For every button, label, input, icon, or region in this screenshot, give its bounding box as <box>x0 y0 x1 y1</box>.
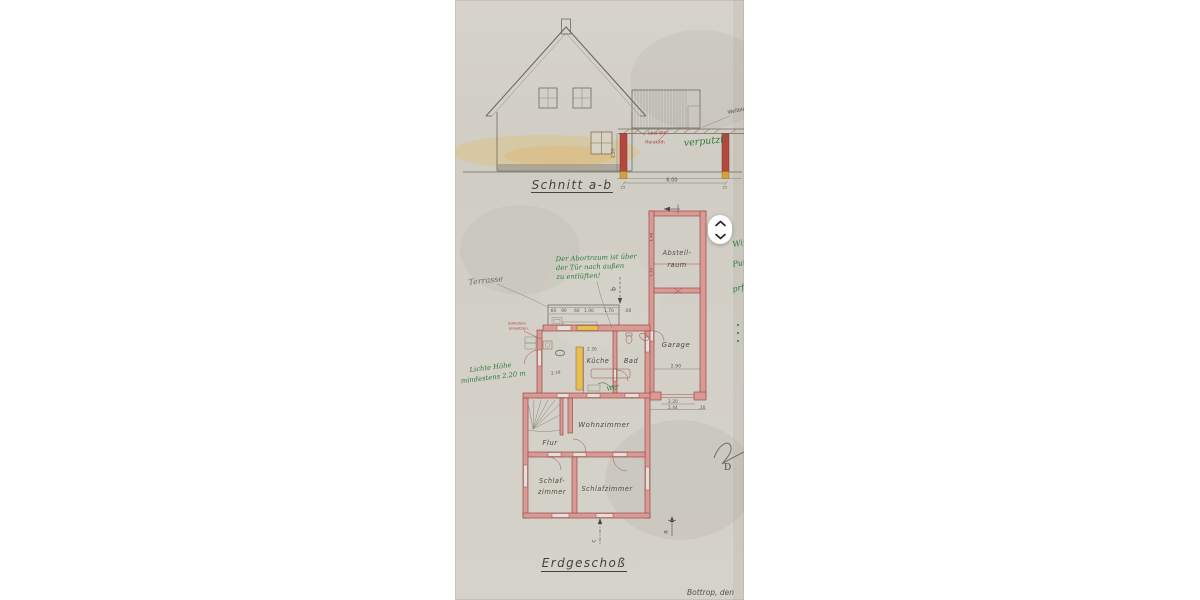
chevron-down-icon <box>715 233 726 240</box>
nav-control <box>708 215 732 244</box>
viewer-canvas: über 8½ Heraklith verputzt! Wellblech 6.… <box>0 0 1200 600</box>
staircase <box>528 400 560 432</box>
dim-wasch: 2.18 <box>551 369 562 375</box>
dim-terrace-2: 90 <box>561 308 567 313</box>
dim-garage-door: 2.20 <box>668 399 678 404</box>
dim-post-right: 25 <box>723 186 728 190</box>
gable-window-left <box>539 88 557 108</box>
nav-up-button[interactable] <box>710 217 730 230</box>
highlighted-window <box>577 326 598 331</box>
lower-window <box>591 132 612 154</box>
plinth <box>497 164 622 171</box>
room-garage: Garage <box>662 341 691 349</box>
svg-text:raum: raum <box>667 261 686 269</box>
dim-wall: .30 <box>699 405 706 410</box>
svg-text:zu entlüften!: zu entlüften! <box>555 272 601 282</box>
plan-title: Erdgeschoß <box>542 556 627 570</box>
marker-c: c <box>591 518 603 546</box>
room-abstellraum: Abstell- <box>662 249 692 257</box>
dim-garage-door-outer: 2.44 <box>668 405 678 410</box>
dim-carport-height: 2.20 <box>611 148 616 158</box>
room-wohnzimmer: Wohnzimmer <box>578 421 630 429</box>
dim-abstell-2: 1.50 <box>650 267 654 276</box>
svg-text:einsetzen.: einsetzen. <box>509 326 529 331</box>
drawing-svg: über 8½ Heraklith verputzt! Wellblech 6.… <box>455 0 744 600</box>
svg-text:zimmer: zimmer <box>537 488 567 496</box>
note-ueber-heraklith: über 8½ <box>648 130 666 137</box>
dim-carport-span: 6.00 <box>666 178 677 184</box>
dim-kueche: 2.30 <box>587 347 597 352</box>
room-kueche: Küche <box>587 357 610 365</box>
height-note: Lichte Höhe mindestens 2.20 m <box>459 359 526 385</box>
place-date: Bottrop, den <box>687 588 734 597</box>
dim-terrace-4: 1.00 <box>584 308 594 313</box>
svg-text:Putz: Putz <box>731 257 744 269</box>
svg-text:a: a <box>663 530 670 534</box>
dim-garage: 2.90 <box>671 364 682 370</box>
flue-yellow <box>576 347 583 390</box>
scan-document: über 8½ Heraklith verputzt! Wellblech 6.… <box>455 0 744 600</box>
dim-terrace-5: 1.70 <box>604 308 614 313</box>
chevron-up-icon <box>715 220 726 227</box>
sink <box>556 350 565 356</box>
dim-terrace-6: .60 <box>625 308 632 313</box>
dim-terrace-1: 60 <box>551 308 557 313</box>
room-schlafzimmer-links: Schlaf- <box>539 477 565 485</box>
room-flur: Flur <box>542 439 558 447</box>
svg-text:b: b <box>611 287 618 291</box>
gable-window-right <box>573 88 591 108</box>
room-bad: Bad <box>624 357 639 365</box>
section-title: Schnitt a-b <box>532 178 613 192</box>
stove <box>588 385 600 391</box>
note-heraklith: Heraklith <box>645 140 665 146</box>
room-schlafzimmer-rechts: Schlafzimmer <box>581 485 633 493</box>
svg-text:c: c <box>591 539 598 542</box>
stamp-letter: D <box>724 463 731 473</box>
dim-post-left: 25 <box>621 186 626 190</box>
note-verputzt: verputzt! <box>683 134 728 149</box>
nav-down-button[interactable] <box>710 230 730 243</box>
dim-abstell-1: 1.48 <box>650 232 654 241</box>
carport-post-left <box>620 134 627 172</box>
dim-terrace-3: 60 <box>574 308 580 313</box>
boiler <box>543 341 552 349</box>
bathtub <box>591 369 630 378</box>
entry-step <box>525 337 536 343</box>
